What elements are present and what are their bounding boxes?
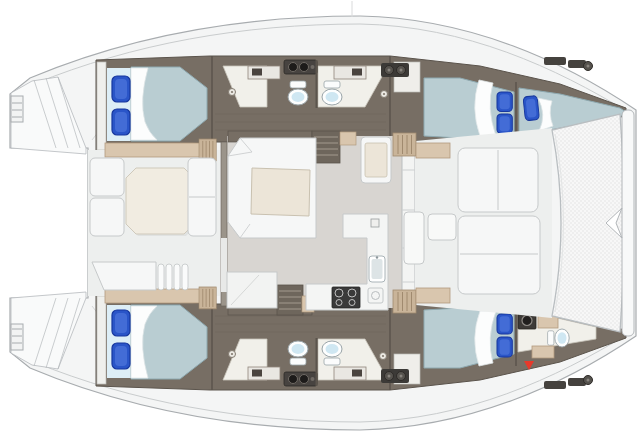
pillow (112, 343, 130, 369)
cabinet (532, 346, 554, 358)
pillow (497, 114, 512, 134)
walkway-trim (105, 143, 200, 157)
shower-drain (229, 89, 236, 96)
fore-seat (458, 216, 540, 294)
toilet (288, 341, 308, 365)
galley-sink (369, 256, 385, 282)
rope-clutch (544, 57, 566, 65)
boarding-ladder (11, 96, 23, 122)
companionway-steps-starboard (277, 285, 303, 315)
pillow (112, 76, 130, 102)
aft-cockpit (88, 139, 220, 309)
vanity-sink (334, 66, 366, 79)
shower-drain (380, 353, 387, 360)
deck-locker (416, 288, 450, 303)
counter (538, 316, 558, 328)
winch (584, 376, 593, 385)
twin-sink-unit (284, 60, 317, 74)
pillow (497, 337, 512, 357)
salon-sofa (228, 138, 316, 238)
closet (97, 62, 106, 150)
cockpit-table (126, 168, 194, 234)
cabinet (340, 132, 356, 145)
side-deck-steps (393, 290, 416, 313)
boarding-ladder (11, 324, 23, 350)
pillow (497, 314, 512, 334)
forward-door (404, 212, 424, 264)
trampoline (552, 110, 634, 336)
rope-clutch (544, 381, 566, 389)
pillow (523, 96, 539, 121)
bow-crossbeam (622, 110, 634, 336)
pillow (112, 109, 130, 135)
transom-step-slat (166, 264, 172, 290)
salon (221, 131, 415, 315)
walkway-trim (105, 289, 200, 303)
floor-plan-canvas (0, 0, 640, 446)
catamaran-floor-plan (0, 0, 640, 446)
control-panel (371, 219, 379, 227)
transom-step-slat (158, 264, 164, 290)
vanity-sink (248, 367, 280, 380)
fore-table (428, 214, 456, 240)
pillow (497, 92, 512, 112)
toilet (322, 81, 342, 105)
deck-locker (416, 143, 450, 158)
winch (385, 372, 394, 381)
transom-step-slat (182, 264, 188, 290)
heads-starboard (223, 338, 388, 386)
galley-cabinet (227, 272, 277, 308)
transom-step-slat (174, 264, 180, 290)
shower-drain (381, 91, 388, 98)
winch (397, 66, 406, 75)
winch (397, 372, 406, 381)
sliding-door-opening (221, 238, 227, 292)
heads-port (223, 60, 388, 108)
vanity-sink (248, 66, 280, 79)
vanity-sink (334, 367, 366, 380)
winch (385, 66, 394, 75)
forward-cockpit (393, 128, 552, 318)
toilet (288, 81, 308, 105)
appliance (368, 288, 383, 303)
twin-sink-unit (284, 372, 317, 386)
salon-table (251, 168, 310, 216)
shower-drain (229, 351, 236, 358)
side-deck-steps (199, 287, 216, 309)
pillow (112, 310, 130, 336)
toilet (322, 341, 342, 365)
side-deck-steps (393, 133, 416, 156)
bench-cushion (90, 198, 124, 236)
toilet (548, 329, 570, 347)
winch (584, 62, 593, 71)
stove (332, 287, 360, 308)
chart-seat (361, 137, 391, 183)
closet (97, 296, 106, 384)
bench-cushion (90, 158, 124, 196)
